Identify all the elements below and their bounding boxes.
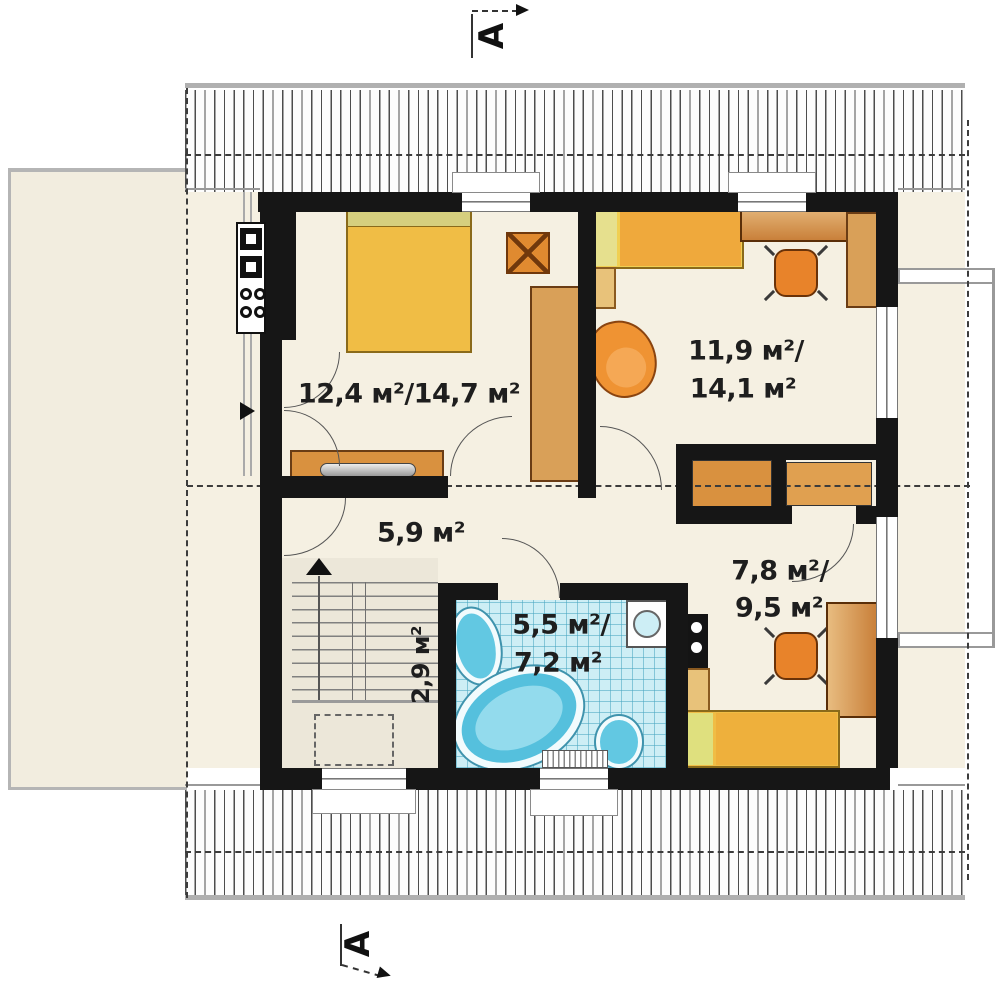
- roof-projection-line-bottom: [185, 851, 965, 853]
- closet-wall-left-cap: [676, 444, 692, 524]
- office-chair-bottom: [766, 624, 826, 688]
- roof-window-bottom-left: [322, 768, 406, 790]
- room-top-right-area-label-line2: 14,1 м²: [690, 374, 796, 405]
- chair-seat: [774, 249, 818, 297]
- roof-edge-bottom: [185, 895, 965, 900]
- bean-bag-cushion: [602, 343, 650, 391]
- wardrobe-left-bedroom: [530, 286, 582, 482]
- wardrobe-top-right: [846, 212, 878, 308]
- stair-stringer: [352, 582, 366, 702]
- roof-projection-line-right: [967, 120, 969, 880]
- eaves-line-bottom-left: [185, 784, 260, 786]
- entrance-arrow: [240, 402, 255, 420]
- section-arrowhead-top: [516, 4, 529, 16]
- chair-leg: [764, 245, 775, 256]
- flue-round: [254, 306, 266, 318]
- closet-right: [786, 462, 872, 506]
- interior-wall-rooms-divider: [578, 192, 596, 498]
- section-line-bottom-arrow-stem: [342, 964, 381, 977]
- closet-wall-divider: [772, 450, 786, 514]
- room-bottom-right-area-label-line1: 7,8 м²/: [731, 556, 829, 587]
- side-roof-plane: [8, 168, 187, 790]
- dormer-wall-right: [992, 268, 995, 648]
- window-right-upper: [876, 307, 898, 418]
- stairs-direction-arrow: [306, 558, 332, 575]
- single-bed-top-blanket: [620, 212, 741, 266]
- flue-vent: [691, 622, 702, 633]
- closet-left: [692, 460, 772, 508]
- dormer-wall-bottom: [898, 632, 994, 648]
- section-arrowhead-bottom: [377, 966, 393, 981]
- window-top-left: [462, 192, 530, 212]
- chair-seat: [774, 632, 818, 680]
- chair-leg: [764, 674, 775, 685]
- chimney-flue-left: [264, 208, 296, 340]
- window-sill-bottom-left: [312, 789, 416, 814]
- flue-square: [240, 228, 262, 250]
- exterior-wall-right-b: [876, 418, 898, 517]
- bathroom-wall-right: [666, 583, 688, 768]
- stair-void-outline: [314, 714, 394, 766]
- flue-round: [240, 288, 252, 300]
- interior-wall-bedroom-hall: [260, 476, 448, 498]
- dormer-wall-top: [898, 268, 994, 284]
- eaves-line-bottom-right: [898, 784, 965, 786]
- stair-walk-line: [318, 576, 320, 702]
- hall-area-label: 5,9 м²: [377, 518, 465, 549]
- eaves-line-top-left: [185, 188, 260, 190]
- exterior-wall-top-b: [530, 192, 738, 212]
- bathroom-area-label-line1: 5,5 м²/: [512, 610, 610, 641]
- staircase-area-label: 2,9 м²: [407, 626, 435, 704]
- flue-round: [254, 288, 266, 300]
- window-right-lower: [876, 517, 898, 638]
- exterior-wall-right-a: [876, 192, 898, 307]
- eaves-line-top-right: [898, 188, 965, 190]
- exterior-wall-bottom-b: [406, 768, 540, 790]
- window-sill-top-left: [452, 172, 540, 193]
- window-sill-top-right: [728, 172, 816, 193]
- bedroom-area-label: 12,4 м²/14,7 м²: [298, 379, 520, 410]
- bathroom-wall-left: [438, 583, 456, 768]
- section-line-top-arrow-stem: [472, 10, 518, 12]
- exterior-wall-bottom-c: [608, 768, 890, 790]
- desk-bottom: [826, 602, 878, 718]
- closet-wall-bottom-b: [856, 506, 878, 524]
- floor-plan-canvas: 12,4 м²/14,7 м² 11,9 м²/ 14,1 м² 5,9 м² …: [0, 0, 1000, 985]
- sink-basin: [633, 610, 661, 638]
- section-letter-top: A: [472, 23, 512, 49]
- room-bottom-right-area-label-line2: 9,5 м²: [735, 593, 823, 624]
- room-top-right-area-label-line1: 11,9 м²/: [688, 336, 804, 367]
- chair-leg: [764, 290, 775, 301]
- office-chair-top: [766, 242, 826, 304]
- exterior-wall-bottom-a: [260, 768, 322, 790]
- single-bed-bottom-pillow: [685, 713, 713, 765]
- single-bed-bottom-blanket: [716, 713, 837, 765]
- roof-projection-line-top: [185, 154, 965, 156]
- section-letter-bottom: A: [338, 931, 378, 957]
- roof-window-bottom-middle: [540, 768, 608, 790]
- roof-hatch-top: [185, 90, 965, 192]
- stool-chair: [506, 232, 550, 274]
- roof-edge-top: [185, 83, 965, 88]
- window-top-right: [738, 192, 806, 212]
- flue-square: [240, 256, 262, 278]
- chair-leg: [764, 627, 775, 638]
- flue-vent: [691, 642, 702, 653]
- bathroom-area-label-line2: 7,2 м²: [514, 648, 602, 679]
- radiator: [542, 750, 608, 768]
- flue-round: [240, 306, 252, 318]
- roof-projection-line-left: [186, 88, 188, 898]
- exterior-wall-right-c: [876, 638, 898, 768]
- window-sill-bottom-middle: [530, 789, 618, 816]
